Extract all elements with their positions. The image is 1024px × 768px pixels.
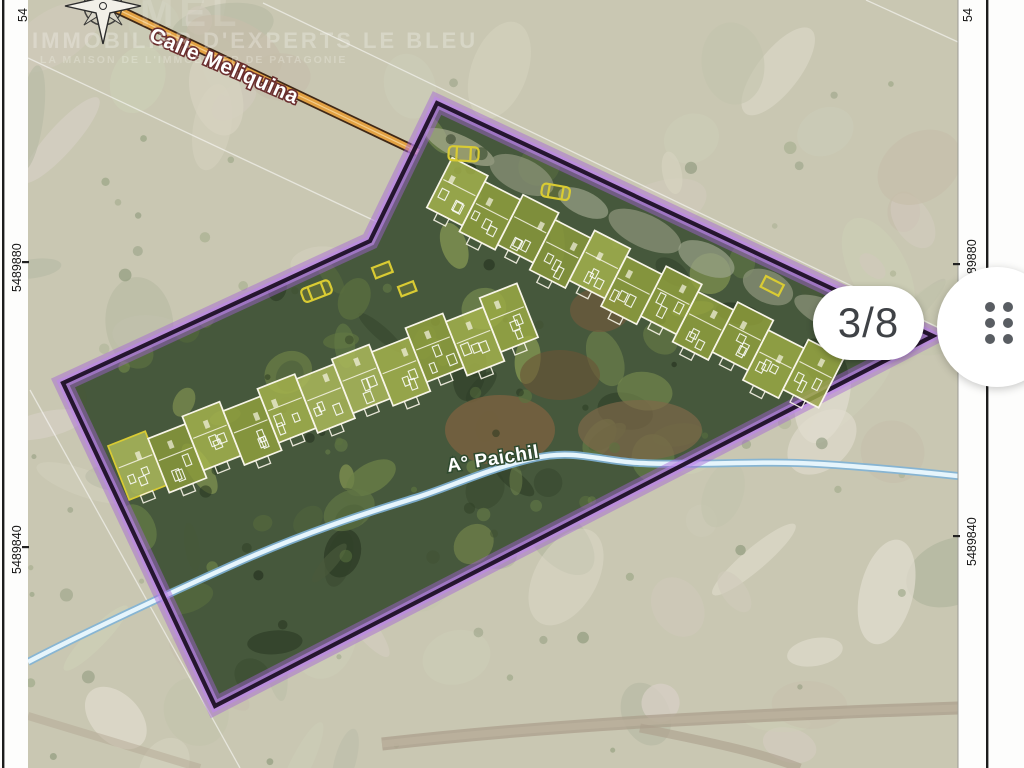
coord-top-left-partial: 54 xyxy=(16,8,30,22)
car-icon xyxy=(448,146,479,162)
image-counter-text: 3/8 xyxy=(838,299,899,347)
terrain-layer: Calle Meliquina A° Paichil MEL IMMOBILIE… xyxy=(0,0,1009,768)
watermark-line1: IMMOBILIER D'EXPERTS LE BLEU xyxy=(32,28,478,53)
image-gallery-viewer: Calle Meliquina A° Paichil MEL IMMOBILIE… xyxy=(0,0,1024,768)
coord-left-bottom: 5489840 xyxy=(10,525,24,574)
grid-dots-icon xyxy=(985,302,1013,344)
watermark-line2: LA MAISON DE L'IMMOBILIER DE PATAGONIE xyxy=(40,54,347,66)
coord-right-bottom: 5489840 xyxy=(965,517,979,566)
image-counter-badge: 3/8 xyxy=(813,286,924,360)
aerial-site-plan-image: Calle Meliquina A° Paichil MEL IMMOBILIE… xyxy=(0,0,1024,768)
coord-top-right-partial: 54 xyxy=(961,8,975,22)
coord-left-top: 5489880 xyxy=(10,243,24,292)
